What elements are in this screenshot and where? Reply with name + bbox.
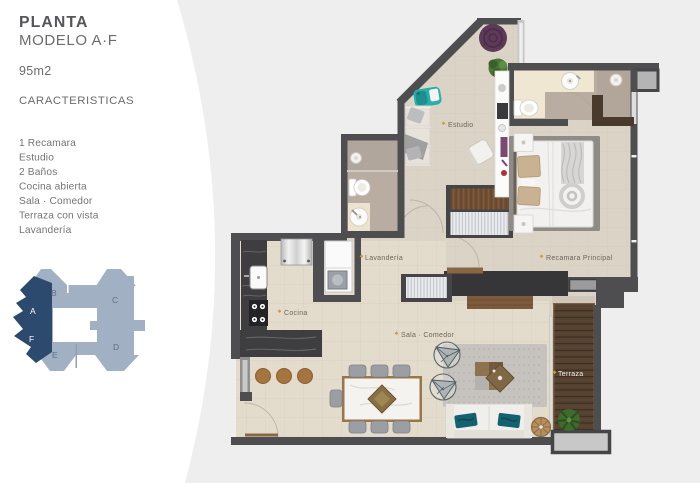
svg-text:Cocina: Cocina [284,310,308,317]
svg-text:Estudio: Estudio [448,122,473,129]
svg-text:F: F [29,334,34,344]
svg-text:Sala · Comedor: Sala · Comedor [19,196,93,207]
svg-text:Estudio: Estudio [19,153,54,164]
svg-text:E: E [52,350,58,360]
svg-text:1 Recamara: 1 Recamara [19,138,76,149]
svg-text:Recamara Principal: Recamara Principal [546,255,613,262]
svg-text:PLANTA: PLANTA [19,14,89,31]
svg-text:Cocina abierta: Cocina abierta [19,182,87,193]
svg-text:Lavandería: Lavandería [365,255,403,262]
svg-text:MODELO A·F: MODELO A·F [19,32,118,49]
svg-text:Sala · Comedor: Sala · Comedor [401,332,455,339]
svg-text:Lavandería: Lavandería [19,225,72,236]
svg-text:2 Baños: 2 Baños [19,167,57,178]
svg-text:D: D [113,342,119,352]
svg-text:CARACTERISTICAS: CARACTERISTICAS [19,95,134,107]
svg-text:A: A [30,306,36,316]
svg-text:95m2: 95m2 [19,64,51,78]
svg-text:Terraza: Terraza [558,371,583,378]
svg-text:B: B [51,288,57,298]
svg-text:C: C [112,295,118,305]
svg-text:Terraza con vista: Terraza con vista [19,211,99,222]
